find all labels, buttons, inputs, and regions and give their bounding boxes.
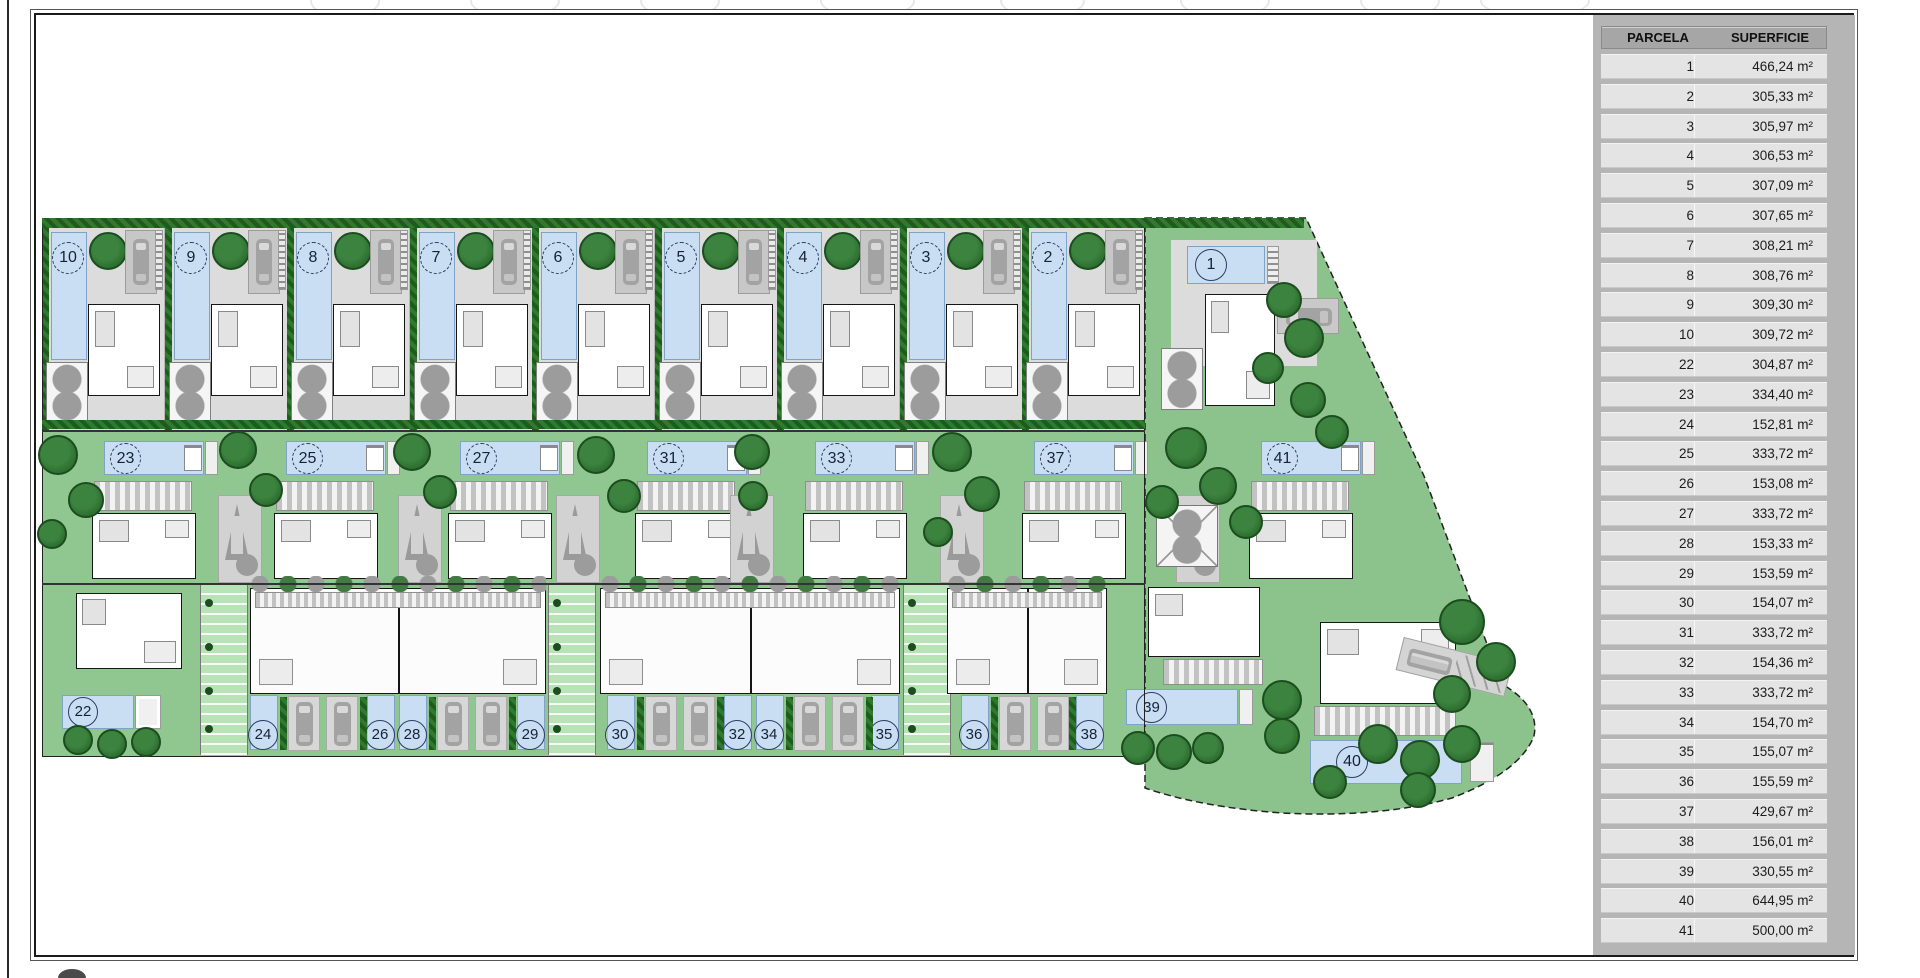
- row-divider-2: [42, 583, 1145, 585]
- cell-superficie: 333,72 m²: [1695, 621, 1827, 644]
- pool-terrace: [1239, 689, 1253, 725]
- cell-superficie: 152,81 m²: [1695, 413, 1827, 436]
- pergola: [1163, 659, 1263, 685]
- cell-parcela: 1: [1601, 55, 1695, 78]
- cell-superficie: 334,40 m²: [1695, 383, 1827, 406]
- tree-icon: [1229, 505, 1263, 539]
- cell-parcela: 28: [1601, 532, 1695, 555]
- table-row: 39330,55 m²: [1601, 859, 1827, 884]
- pergola: [1251, 481, 1349, 511]
- plot-number-label: 41: [1267, 443, 1298, 474]
- cell-parcela: 9: [1601, 293, 1695, 316]
- tree-icon: [1284, 318, 1324, 358]
- cell-superficie: 500,00 m²: [1695, 919, 1827, 942]
- tree-icon: [1165, 427, 1207, 469]
- tree-icon: [1313, 765, 1347, 799]
- tree-icon: [1192, 732, 1224, 764]
- cell-superficie: 305,97 m²: [1695, 115, 1827, 138]
- cell-superficie: 304,87 m²: [1695, 353, 1827, 376]
- house-floorplan: [1249, 513, 1353, 579]
- table-row: 40644,95 m²: [1601, 888, 1827, 913]
- table-row: 38156,01 m²: [1601, 829, 1827, 854]
- table-row: 8308,76 m²: [1601, 263, 1827, 288]
- cell-superficie: 333,72 m²: [1695, 442, 1827, 465]
- tree-icon: [577, 436, 615, 474]
- cell-superficie: 153,08 m²: [1695, 472, 1827, 495]
- parcel-table-header: PARCELA SUPERFICIE: [1601, 26, 1827, 49]
- tree-icon: [1476, 642, 1516, 682]
- table-row: 7308,21 m²: [1601, 233, 1827, 258]
- cell-parcela: 31: [1601, 621, 1695, 644]
- table-row: 35155,07 m²: [1601, 739, 1827, 764]
- cell-superficie: 156,01 m²: [1695, 830, 1827, 853]
- tree-icon: [1315, 415, 1349, 449]
- tree-icon: [1262, 680, 1302, 720]
- tree-icon: [423, 475, 457, 509]
- parcel-table: PARCELA SUPERFICIE 1466,24 m²2305,33 m²3…: [1601, 26, 1827, 948]
- cell-superficie: 330,55 m²: [1695, 860, 1827, 883]
- header-superficie: SUPERFICIE: [1714, 27, 1826, 48]
- table-row: 37429,67 m²: [1601, 799, 1827, 824]
- perimeter-hedge-top: [42, 218, 1304, 228]
- tree-icon: [1266, 282, 1302, 318]
- cell-parcela: 6: [1601, 204, 1695, 227]
- cell-parcela: 24: [1601, 413, 1695, 436]
- site-plan-page: 1098765432123252731333741242628293032343…: [0, 0, 1920, 978]
- plot-number-label: 1: [1195, 249, 1227, 281]
- table-row: 29153,59 m²: [1601, 561, 1827, 586]
- row-divider-1: [42, 430, 1145, 432]
- tree-icon: [1156, 734, 1192, 770]
- table-row: 28153,33 m²: [1601, 531, 1827, 556]
- row1-bottom-hedge: [42, 420, 1145, 429]
- tree-icon: [1252, 352, 1284, 384]
- tree-icon: [1121, 731, 1155, 765]
- cell-parcela: 23: [1601, 383, 1695, 406]
- cell-parcela: 34: [1601, 711, 1695, 734]
- table-row: 2305,33 m²: [1601, 84, 1827, 109]
- cell-superficie: 153,59 m²: [1695, 562, 1827, 585]
- tree-icon: [1439, 599, 1485, 645]
- tree-icon: [38, 435, 78, 475]
- table-row: 9309,30 m²: [1601, 292, 1827, 317]
- tree-icon: [1433, 675, 1471, 713]
- table-row: 30154,07 m²: [1601, 590, 1827, 615]
- table-row: 4306,53 m²: [1601, 143, 1827, 168]
- tree-icon: [964, 476, 1000, 512]
- cell-parcela: 26: [1601, 472, 1695, 495]
- cell-parcela: 38: [1601, 830, 1695, 853]
- tree-icon: [97, 729, 127, 759]
- parcel-table-body: 1466,24 m²2305,33 m²3305,97 m²4306,53 m²…: [1601, 54, 1827, 943]
- table-row: 1466,24 m²: [1601, 54, 1827, 79]
- table-row: 36155,59 m²: [1601, 769, 1827, 794]
- tree-icon: [1290, 382, 1326, 418]
- house-floorplan: [1205, 294, 1275, 406]
- tree-icon: [131, 727, 161, 757]
- table-row: 5307,09 m²: [1601, 173, 1827, 198]
- cell-superficie: 153,33 m²: [1695, 532, 1827, 555]
- cell-superficie: 308,76 m²: [1695, 264, 1827, 287]
- tree-icon: [734, 434, 770, 470]
- cell-superficie: 466,24 m²: [1695, 55, 1827, 78]
- cell-superficie: 333,72 m²: [1695, 502, 1827, 525]
- table-row: 33333,72 m²: [1601, 680, 1827, 705]
- cell-parcela: 10: [1601, 323, 1695, 346]
- cell-parcela: 25: [1601, 442, 1695, 465]
- cell-parcela: 33: [1601, 681, 1695, 704]
- cell-superficie: 155,07 m²: [1695, 740, 1827, 763]
- tree-icon: [1443, 725, 1481, 763]
- tree-icon: [932, 432, 972, 472]
- cell-superficie: 429,67 m²: [1695, 800, 1827, 823]
- cell-parcela: 41: [1601, 919, 1695, 942]
- cell-superficie: 333,72 m²: [1695, 681, 1827, 704]
- cell-superficie: 644,95 m²: [1695, 889, 1827, 912]
- terrace-furniture: [1341, 445, 1359, 471]
- tree-icon: [1400, 772, 1436, 808]
- table-row: 10309,72 m²: [1601, 322, 1827, 347]
- table-row: 22304,87 m²: [1601, 352, 1827, 377]
- table-row: 24152,81 m²: [1601, 412, 1827, 437]
- tree-icon: [68, 482, 104, 518]
- tree-icon: [1264, 718, 1300, 754]
- tree-icon: [37, 519, 67, 549]
- cell-superficie: 309,72 m²: [1695, 323, 1827, 346]
- cell-superficie: 154,70 m²: [1695, 711, 1827, 734]
- table-row: 31333,72 m²: [1601, 620, 1827, 645]
- tree-icon: [1358, 724, 1398, 764]
- cell-parcela: 2: [1601, 85, 1695, 108]
- tree-icon: [393, 433, 431, 471]
- tree-icon: [923, 517, 953, 547]
- cell-superficie: 306,53 m²: [1695, 144, 1827, 167]
- table-row: 34154,70 m²: [1601, 710, 1827, 735]
- cell-parcela: 32: [1601, 651, 1695, 674]
- cell-superficie: 309,30 m²: [1695, 293, 1827, 316]
- cell-parcela: 39: [1601, 860, 1695, 883]
- tree-icon: [219, 431, 257, 469]
- cell-parcela: 37: [1601, 800, 1695, 823]
- cell-superficie: 307,65 m²: [1695, 204, 1827, 227]
- cell-parcela: 8: [1601, 264, 1695, 287]
- table-row: 6307,65 m²: [1601, 203, 1827, 228]
- tree-icon: [738, 481, 768, 511]
- cell-parcela: 29: [1601, 562, 1695, 585]
- cell-parcela: 40: [1601, 889, 1695, 912]
- tree-icon: [1145, 485, 1179, 519]
- cell-parcela: 30: [1601, 591, 1695, 614]
- cell-parcela: 4: [1601, 144, 1695, 167]
- courtyard-gray-trees: [1161, 348, 1203, 410]
- table-row: 32154,36 m²: [1601, 650, 1827, 675]
- cell-superficie: 308,21 m²: [1695, 234, 1827, 257]
- tree-icon: [63, 725, 93, 755]
- cell-parcela: 3: [1601, 115, 1695, 138]
- tree-icon: [249, 473, 283, 507]
- table-row: 27333,72 m²: [1601, 501, 1827, 526]
- table-row: 3305,97 m²: [1601, 114, 1827, 139]
- cell-parcela: 5: [1601, 174, 1695, 197]
- cell-superficie: 154,36 m²: [1695, 651, 1827, 674]
- cell-superficie: 155,59 m²: [1695, 770, 1827, 793]
- tree-icon: [1199, 467, 1237, 505]
- cell-parcela: 36: [1601, 770, 1695, 793]
- pool-terrace: [1362, 441, 1375, 475]
- cell-parcela: 22: [1601, 353, 1695, 376]
- table-row: 26153,08 m²: [1601, 471, 1827, 496]
- cell-superficie: 305,33 m²: [1695, 85, 1827, 108]
- car-icon: [1406, 648, 1453, 676]
- tree-icon: [607, 479, 641, 513]
- cell-parcela: 27: [1601, 502, 1695, 525]
- table-row: 25333,72 m²: [1601, 441, 1827, 466]
- cell-parcela: 35: [1601, 740, 1695, 763]
- house-floorplan: [1148, 587, 1260, 657]
- cell-superficie: 154,07 m²: [1695, 591, 1827, 614]
- stairs: [1267, 246, 1279, 284]
- parcel-table-panel: PARCELA SUPERFICIE 1466,24 m²2305,33 m²3…: [1593, 15, 1855, 955]
- header-parcela: PARCELA: [1602, 27, 1714, 48]
- table-row: 41500,00 m²: [1601, 918, 1827, 943]
- cell-superficie: 307,09 m²: [1695, 174, 1827, 197]
- cell-parcela: 7: [1601, 234, 1695, 257]
- table-row: 23334,40 m²: [1601, 382, 1827, 407]
